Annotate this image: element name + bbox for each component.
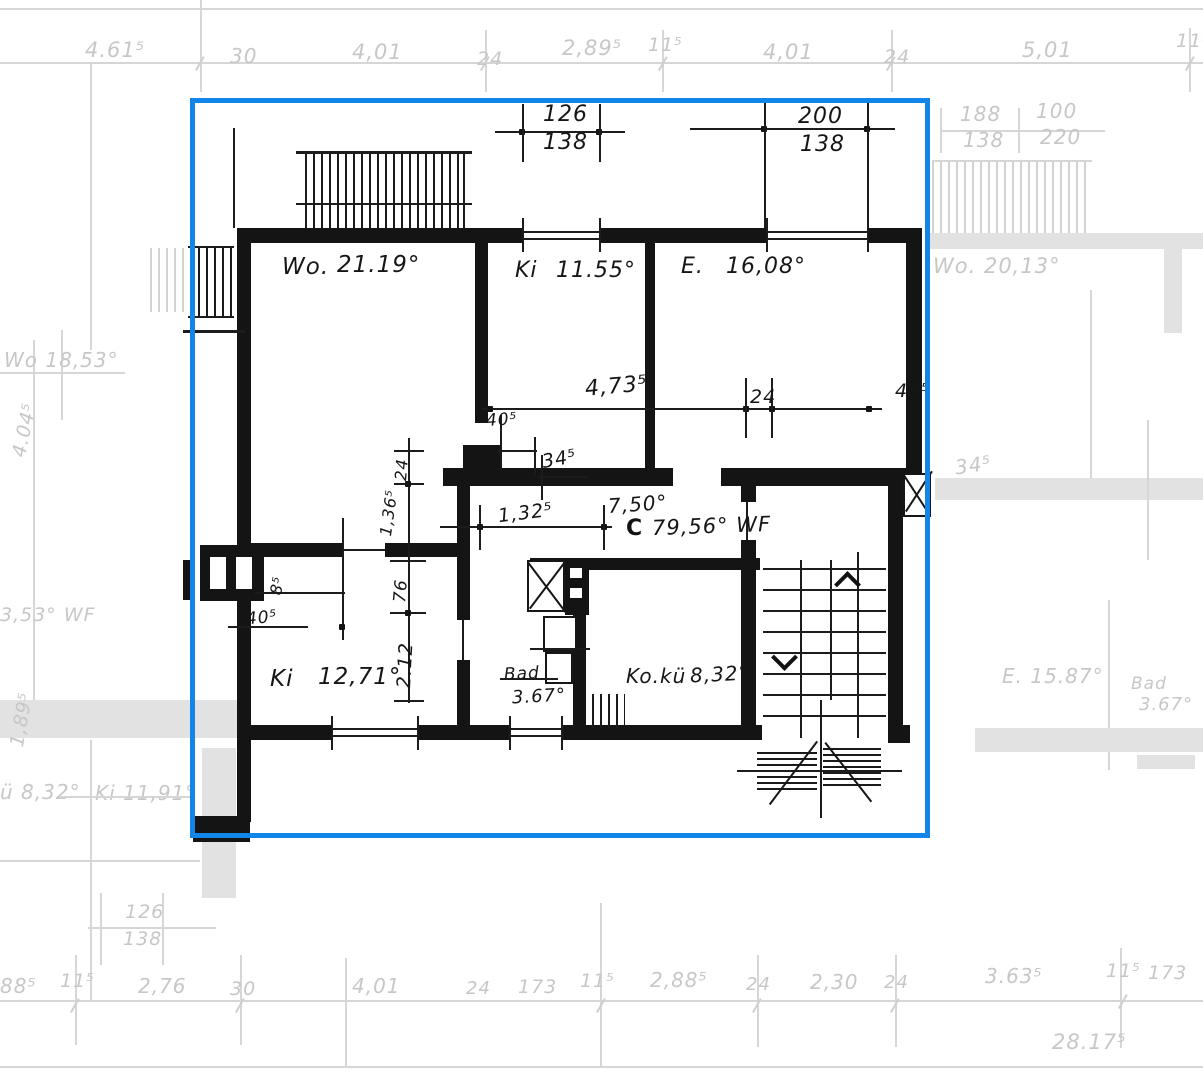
faded-tick	[1018, 108, 1020, 153]
faded-tick	[940, 108, 942, 153]
faded-window-hatch	[932, 162, 1090, 234]
faded-wall	[1137, 755, 1195, 769]
faded-wall	[1164, 249, 1182, 333]
bottom-ruler-value: 88⁵	[0, 976, 36, 996]
faded-window-width: 126	[125, 903, 164, 922]
blueprint-scan: 4.61⁵ 30 4,01 24 2,89⁵ 11⁵ 4,01 24 5,01 …	[0, 0, 1203, 1080]
bottom-ruler-value: 24	[746, 976, 771, 994]
faded-dim-line	[88, 927, 216, 929]
bottom-ruler-value: 173	[1148, 964, 1187, 983]
faded-room-area: 3.67°	[1139, 696, 1193, 714]
faded-line	[61, 330, 63, 420]
bottom-ruler-value: 24	[466, 980, 491, 998]
top-ruler-line	[0, 62, 1203, 64]
faded-dim: 4.04⁵	[10, 401, 40, 459]
faded-line	[1147, 420, 1149, 560]
faded-line	[0, 860, 200, 862]
bottom-ruler-value: 11⁵	[1106, 962, 1141, 981]
bottom-ruler-value: 2,30	[810, 972, 859, 992]
top-ruler-value: 5,01	[1022, 40, 1073, 61]
top-ruler-value: 24	[884, 48, 910, 67]
faded-tick	[100, 893, 102, 965]
top-ruler-value: 30	[230, 46, 257, 66]
top-ruler-value: 11⁵	[1176, 32, 1203, 51]
faded-window-height: 138	[123, 930, 162, 949]
faded-line	[90, 740, 92, 1000]
bottom-ruler-value: 4,01	[352, 976, 401, 996]
faded-strike-line	[60, 796, 190, 798]
faded-line	[90, 62, 92, 350]
faded-window-width: 188	[960, 104, 1001, 124]
faded-line	[1090, 290, 1092, 480]
faded-line	[0, 372, 125, 374]
faded-room-label: E. 15.87°	[1002, 666, 1104, 686]
faded-room-label: Wo. 20,13°	[933, 256, 1061, 277]
top-ruler-value: 2,89⁵	[562, 38, 622, 59]
faded-wall	[975, 728, 1203, 752]
overall-width-label: 28.17⁵	[1052, 1032, 1127, 1053]
faded-room-label: Wo 18,53°	[4, 350, 119, 370]
bottom-ruler-value: 30	[230, 980, 256, 999]
faded-line	[0, 1066, 1203, 1068]
faded-window-hatch	[150, 248, 188, 312]
bottom-ruler-value: 2,76	[138, 976, 187, 996]
ruler-tick	[200, 0, 202, 92]
faded-room-label: Bad	[1131, 676, 1167, 693]
bottom-ruler-value: 24	[884, 974, 909, 992]
faded-window-width: 100	[1036, 101, 1077, 121]
faded-room-label: ü 8,32°	[0, 782, 81, 802]
faded-wall	[930, 233, 1203, 249]
bottom-ruler-value: 11⁵	[60, 972, 95, 991]
faded-room-label: Ki 11,91°	[95, 783, 196, 803]
faded-line	[932, 160, 1092, 162]
bottom-ruler-value: 173	[518, 978, 557, 997]
faded-wall	[935, 478, 1203, 500]
faded-dim: 34⁵	[954, 453, 993, 478]
faded-line	[33, 340, 35, 700]
top-ruler-value: 4,01	[763, 42, 814, 63]
bottom-ruler-value: 3.63⁵	[985, 966, 1043, 986]
faded-tick	[162, 893, 164, 965]
faded-window-height: 220	[1040, 127, 1081, 147]
top-ruler-value: 11⁵	[648, 36, 683, 55]
top-ruler-value: 4,01	[352, 42, 403, 63]
faded-line	[0, 8, 1203, 10]
faded-room-label: 3,53° WF	[0, 606, 96, 625]
bottom-ruler-value: 2,88⁵	[650, 970, 708, 990]
top-ruler-value: 24	[477, 50, 503, 69]
top-ruler-value: 4.61⁵	[85, 40, 145, 61]
faded-tick	[345, 958, 347, 1066]
bottom-ruler-value: 11⁵	[580, 972, 615, 991]
highlight-rectangle	[190, 98, 930, 838]
faded-window-height: 138	[963, 130, 1004, 150]
